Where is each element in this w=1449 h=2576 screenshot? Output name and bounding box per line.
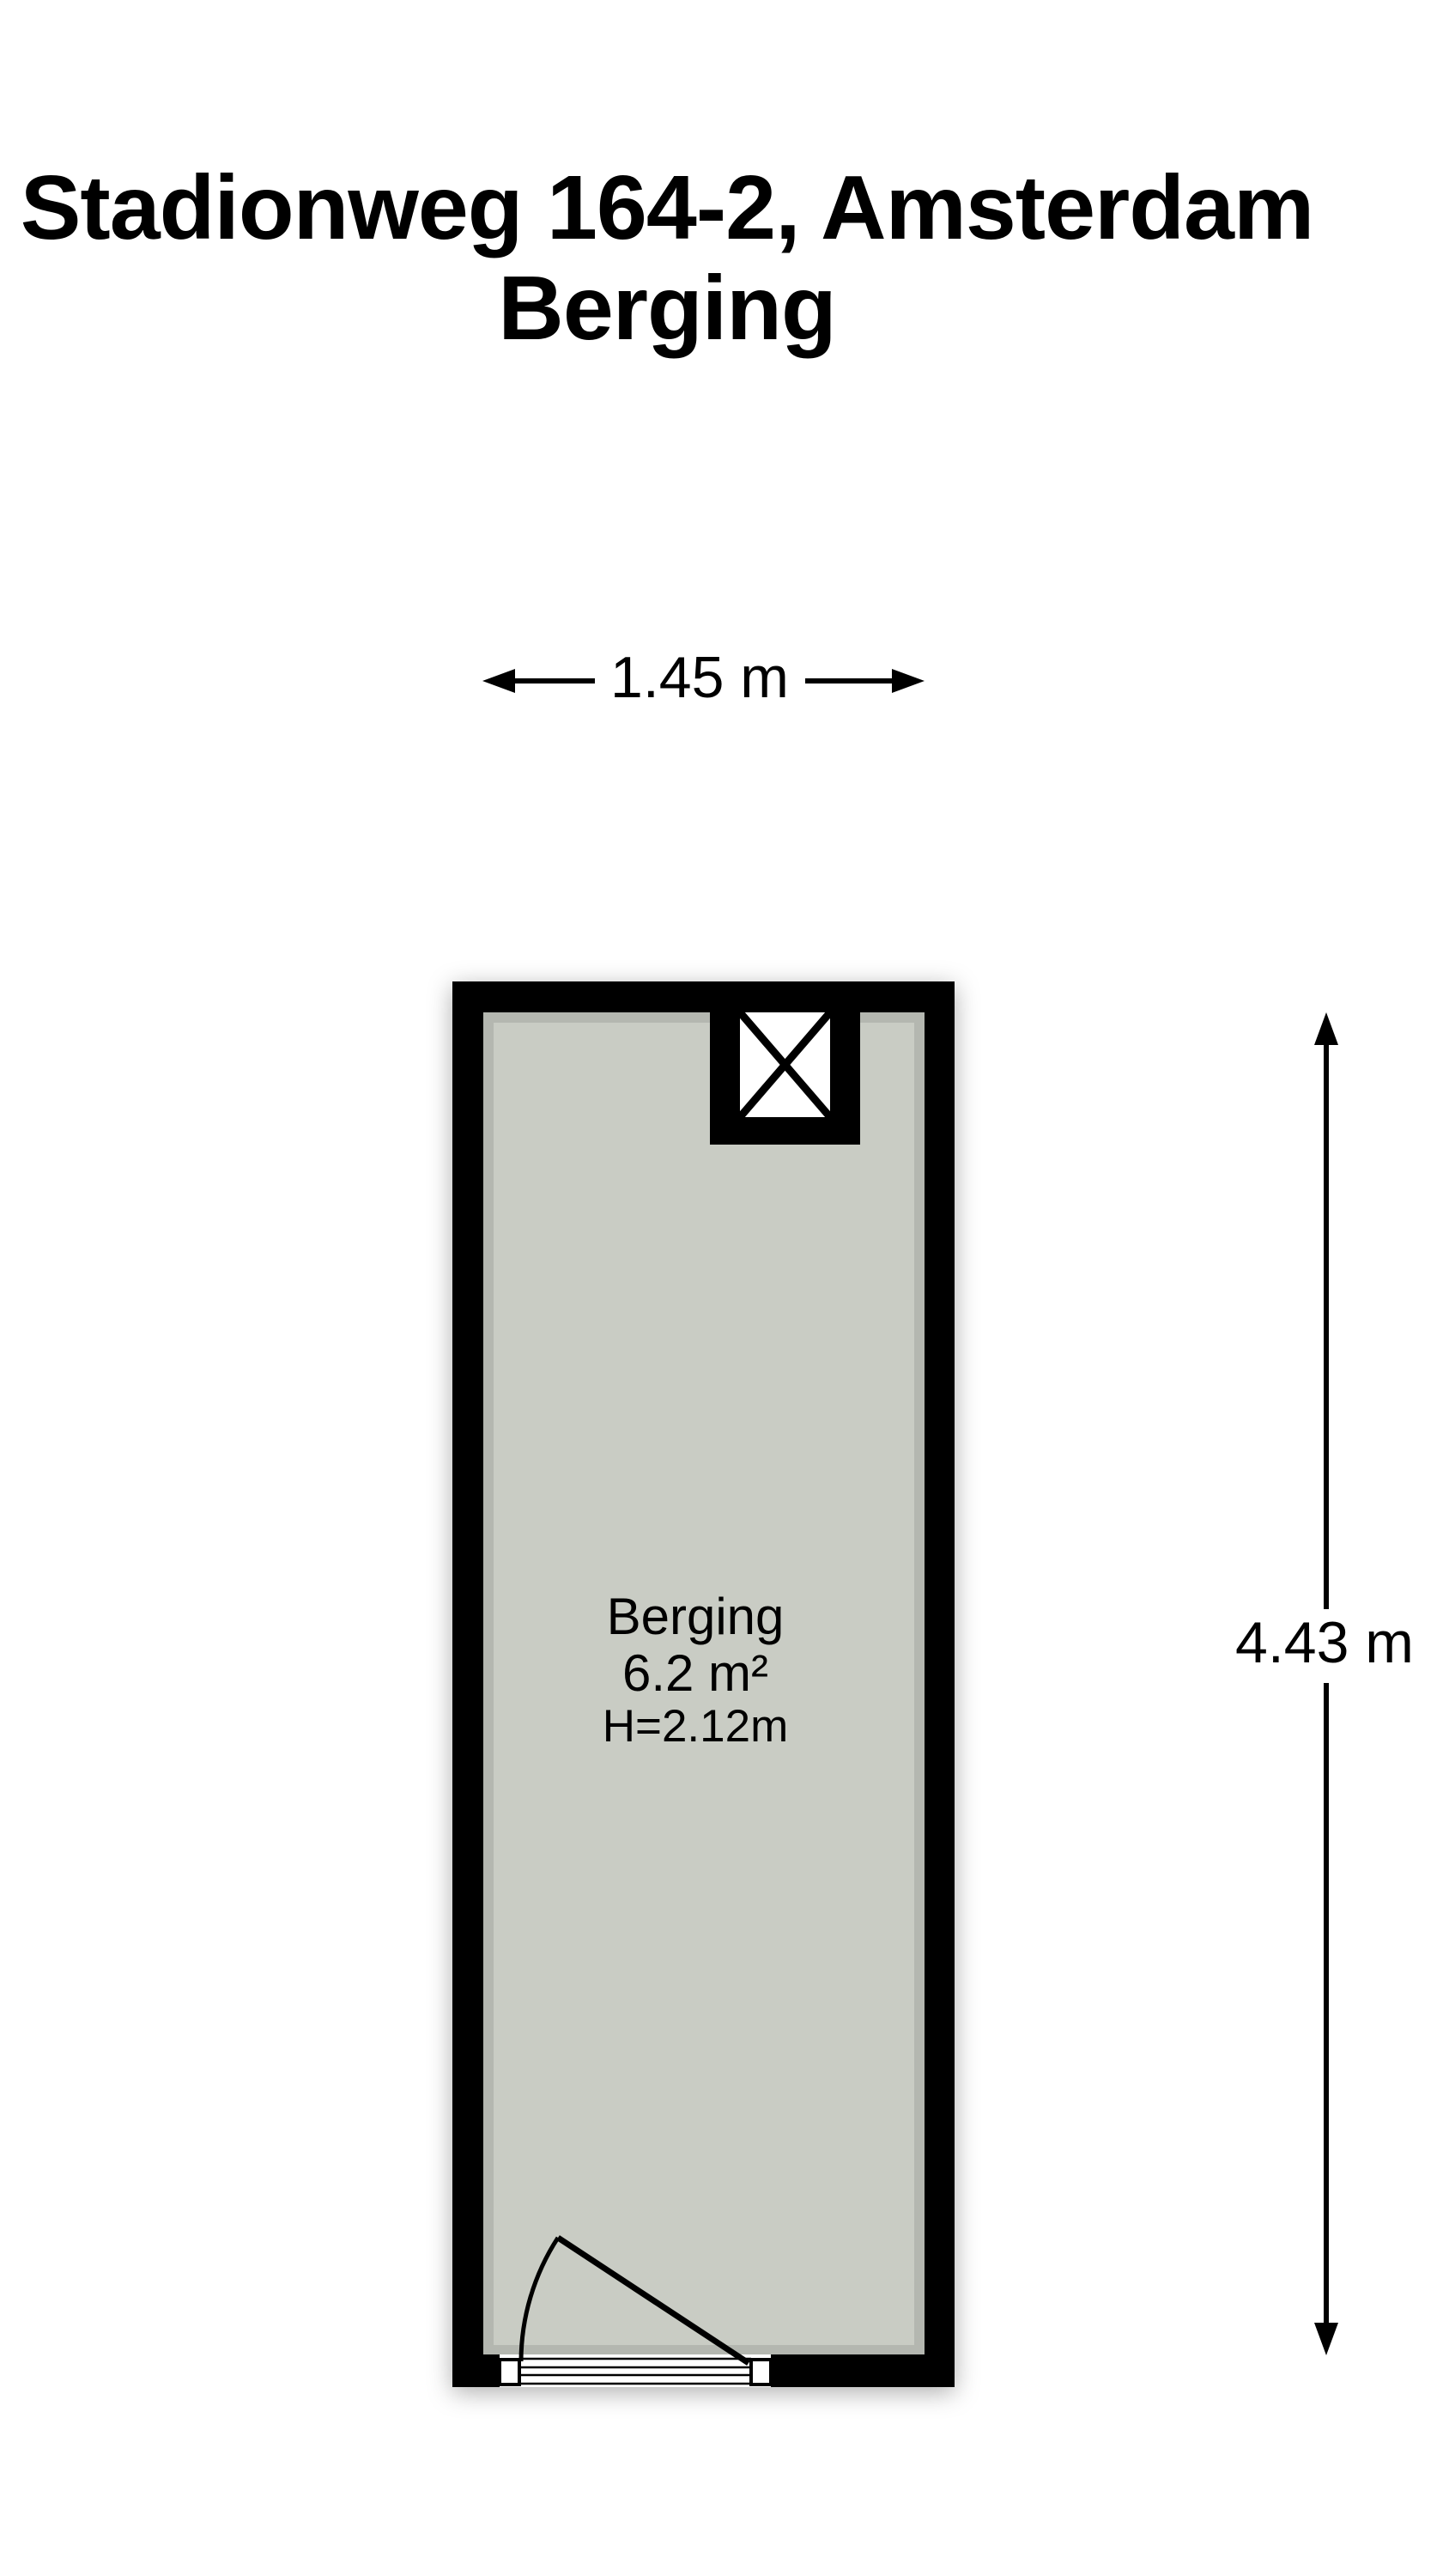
floorplan-canvas: [0, 0, 1449, 2576]
room-height-label: H=2.12m: [352, 1702, 1039, 1752]
arrow-right-icon: [892, 669, 925, 693]
height-dimension: [1314, 1012, 1338, 2355]
room-area-label: 6.2 m²: [352, 1645, 1039, 1702]
door-jamb-right: [751, 2360, 771, 2385]
room-name-label: Berging: [352, 1589, 1039, 1645]
arrow-left-icon: [482, 669, 515, 693]
door-threshold: [500, 2354, 771, 2387]
shaft-icon: [740, 1012, 830, 1117]
arrow-down-icon: [1314, 2323, 1338, 2355]
door-jamb-left: [500, 2360, 519, 2385]
height-dimension-label: 4.43 m: [1153, 1613, 1449, 1672]
arrow-up-icon: [1314, 1012, 1338, 1045]
room-label: Berging 6.2 m² H=2.12m: [352, 1589, 1039, 1752]
floorplan-page: Stadionweg 164-2, Amsterdam Berging: [0, 0, 1449, 2576]
width-dimension-label: 1.45 m: [528, 648, 871, 707]
